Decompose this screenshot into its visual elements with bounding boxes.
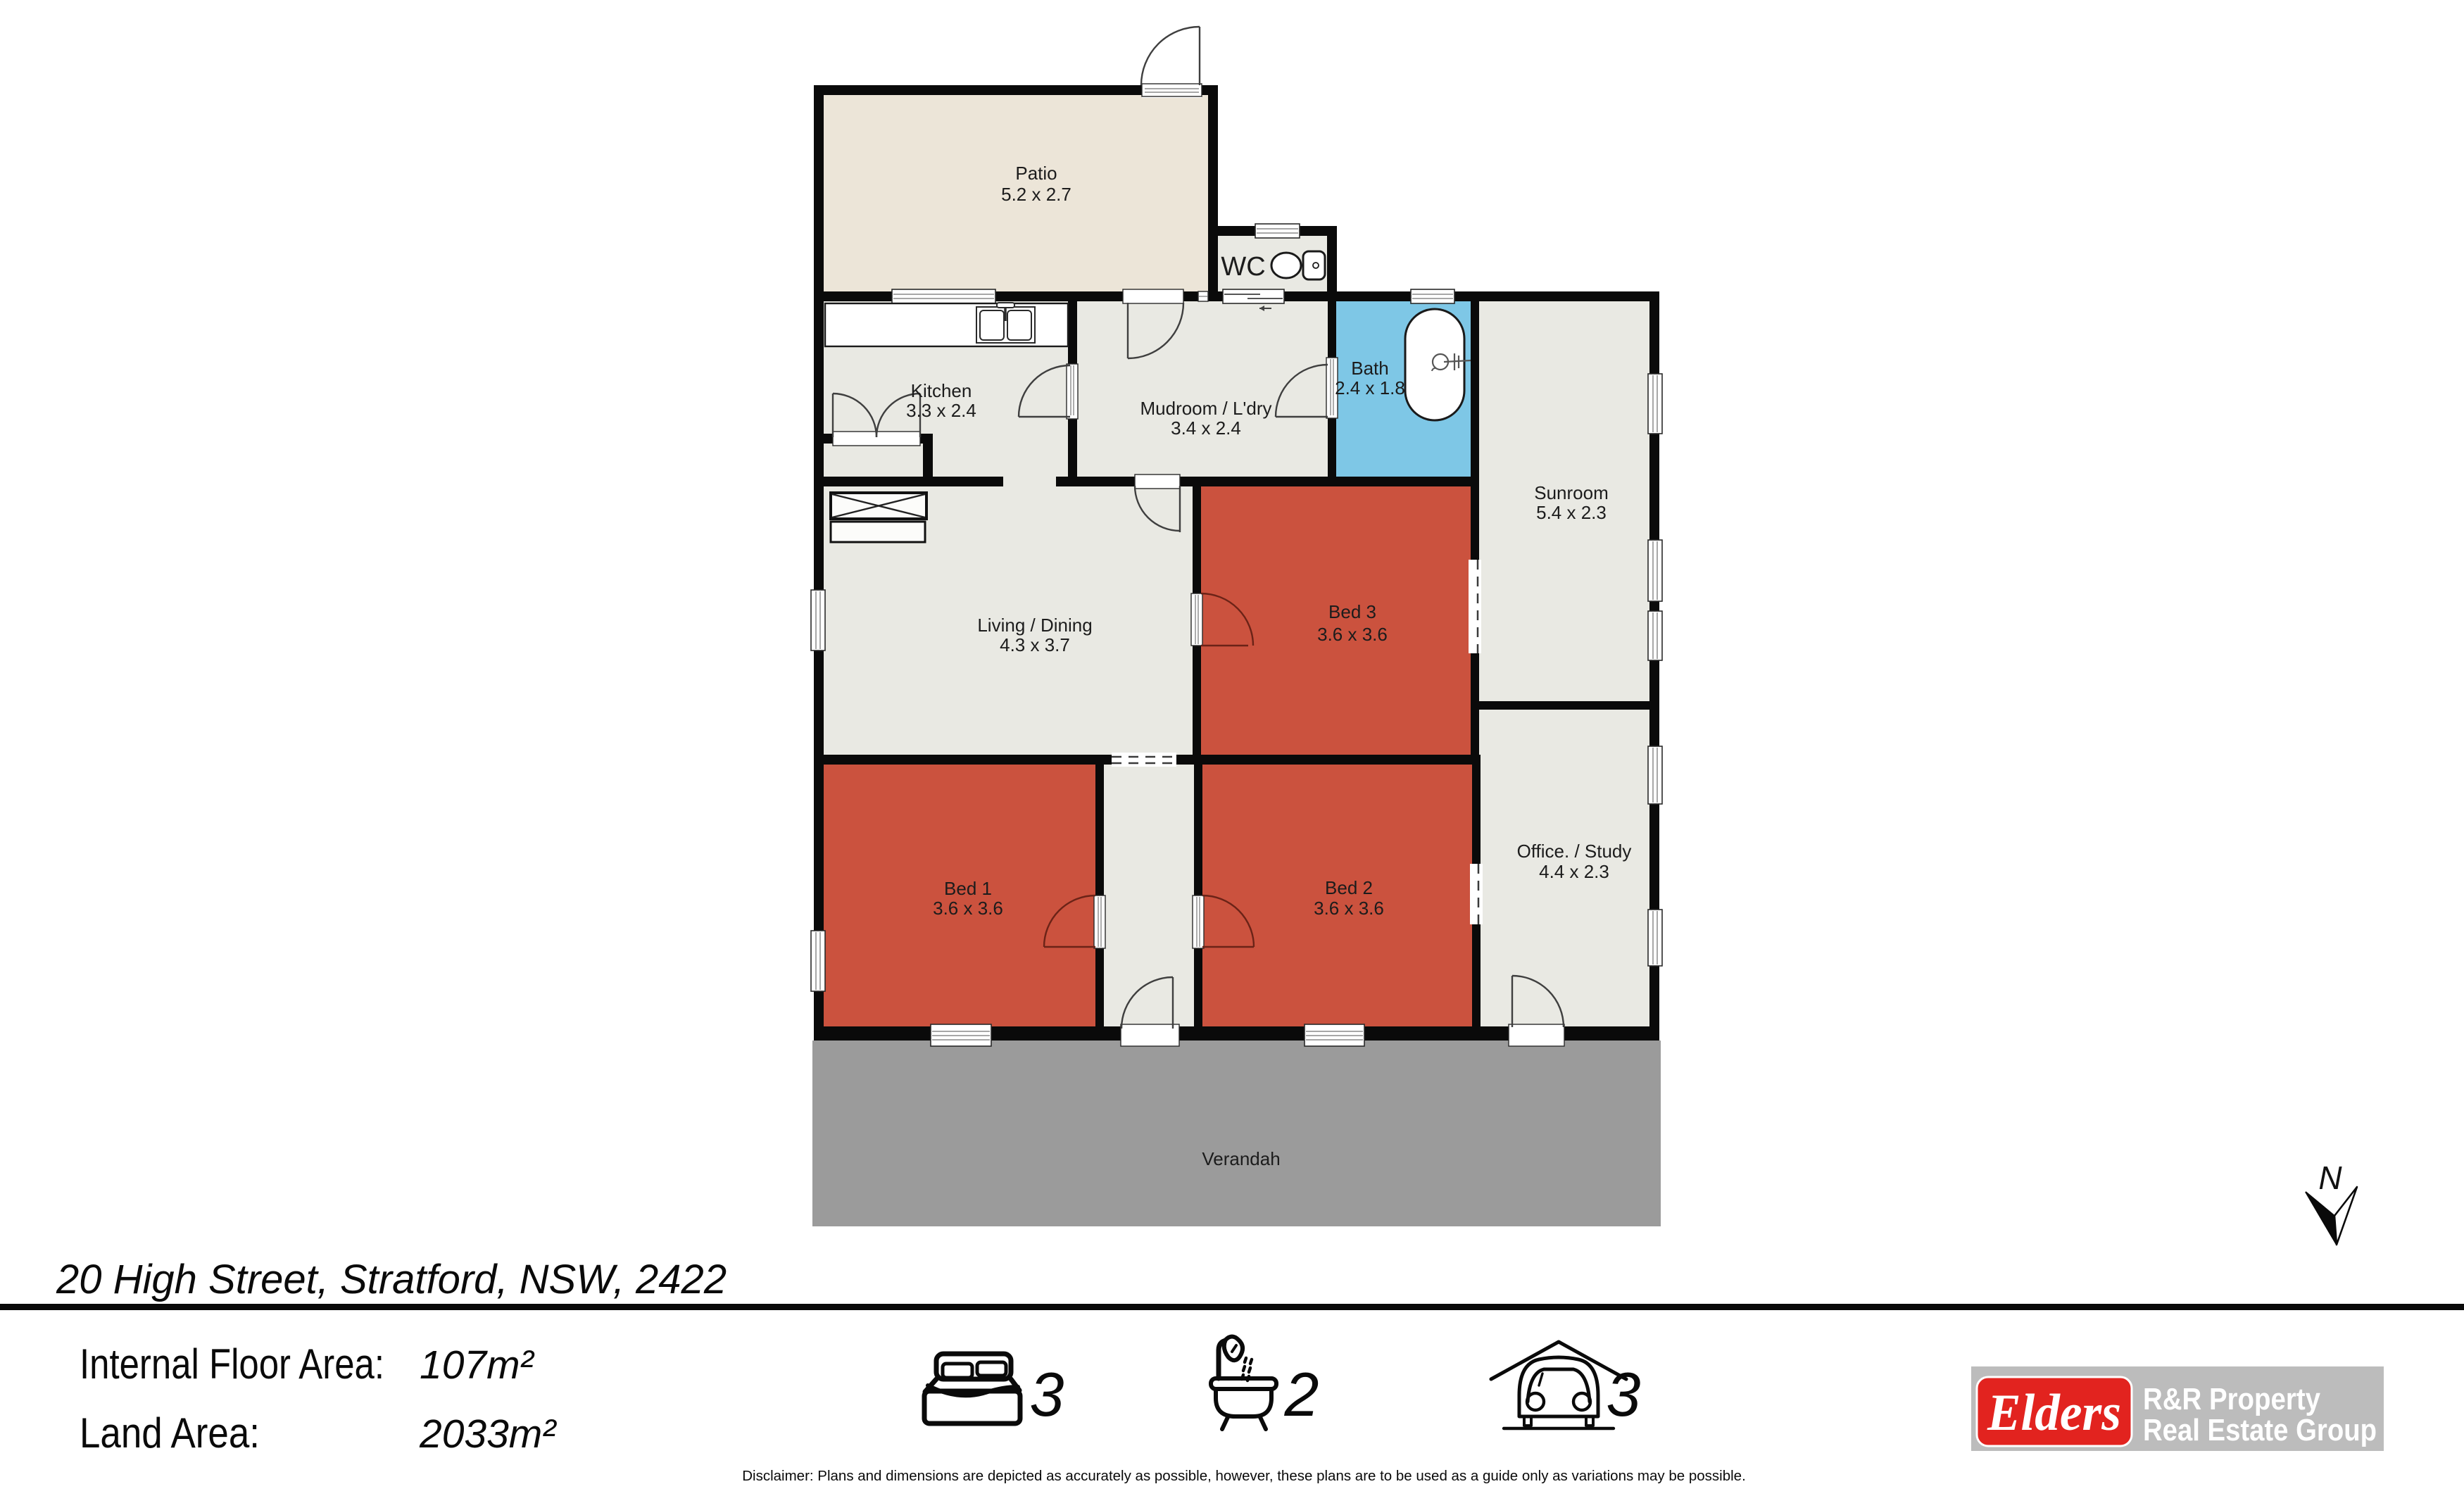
svg-text:3: 3: [1607, 1359, 1641, 1429]
svg-text:Living / Dining: Living / Dining: [977, 615, 1092, 636]
svg-text:Patio: Patio: [1015, 163, 1057, 184]
svg-text:Real Estate Group: Real Estate Group: [2143, 1413, 2377, 1447]
svg-text:Land Area:: Land Area:: [80, 1409, 260, 1457]
svg-text:Bed 2: Bed 2: [1325, 877, 1373, 898]
svg-text:107m²: 107m²: [420, 1343, 535, 1388]
svg-text:3.4 x 2.4: 3.4 x 2.4: [1171, 417, 1241, 439]
svg-text:2.4 x 1.8: 2.4 x 1.8: [1335, 377, 1405, 398]
svg-text:R&R Property: R&R Property: [2143, 1382, 2320, 1416]
svg-text:Sunroom: Sunroom: [1534, 482, 1609, 503]
svg-text:5.2 x 2.7: 5.2 x 2.7: [1001, 184, 1071, 205]
svg-text:Bath: Bath: [1351, 358, 1389, 379]
svg-text:3.6 x 3.6: 3.6 x 3.6: [933, 898, 1003, 919]
svg-text:Internal Floor Area:: Internal Floor Area:: [80, 1340, 384, 1388]
svg-text:4.3 x 3.7: 4.3 x 3.7: [1000, 634, 1070, 655]
svg-text:Mudroom / L'dry: Mudroom / L'dry: [1140, 398, 1271, 419]
svg-text:4.4 x 2.3: 4.4 x 2.3: [1539, 861, 1609, 882]
svg-text:2: 2: [1284, 1359, 1319, 1429]
svg-text:5.4 x 2.3: 5.4 x 2.3: [1536, 502, 1607, 523]
svg-text:20 High Street, Stratford, NSW: 20 High Street, Stratford, NSW, 2422: [56, 1257, 727, 1302]
svg-text:Kitchen: Kitchen: [911, 380, 972, 401]
svg-text:Disclaimer: Plans and dimensio: Disclaimer: Plans and dimensions are dep…: [742, 1468, 1746, 1484]
svg-text:2033m²: 2033m²: [419, 1412, 557, 1457]
svg-text:WC: WC: [1221, 252, 1265, 282]
svg-text:3.6 x 3.6: 3.6 x 3.6: [1314, 898, 1384, 919]
svg-text:Office. / Study: Office. / Study: [1517, 841, 1632, 862]
svg-text:Bed 3: Bed 3: [1328, 601, 1376, 622]
svg-text:Verandah: Verandah: [1202, 1148, 1280, 1169]
svg-text:3.6 x 3.6: 3.6 x 3.6: [1317, 624, 1388, 645]
svg-text:Elders: Elders: [1987, 1384, 2121, 1442]
svg-text:3: 3: [1030, 1359, 1064, 1429]
svg-text:N: N: [2318, 1159, 2342, 1196]
svg-text:Bed 1: Bed 1: [944, 878, 992, 899]
svg-text:3.3 x 2.4: 3.3 x 2.4: [906, 400, 976, 421]
